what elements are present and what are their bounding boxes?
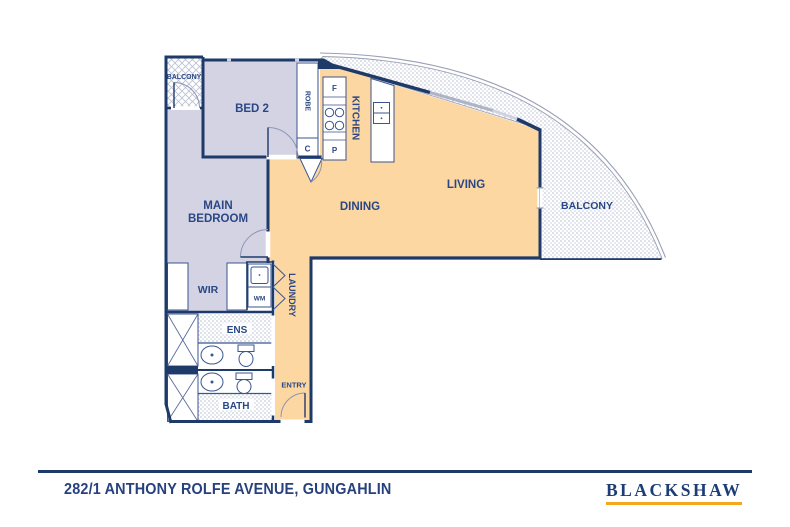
label-wir: WIR (198, 284, 219, 296)
label-pantry: P (332, 146, 338, 155)
ens-bath-divider-wall (166, 366, 198, 374)
wir-wardrobe-right (227, 263, 247, 310)
label-main-bedroom-1: MAIN (203, 200, 232, 212)
label-bath: BATH (222, 401, 249, 412)
label-balcony-right: BALCONY (561, 200, 613, 212)
label-dining: DINING (340, 201, 380, 213)
ens-doorway (271, 316, 274, 367)
room-balcony-left (167, 57, 204, 108)
label-living: LIVING (447, 179, 485, 191)
label-fridge: F (332, 84, 337, 93)
label-robe: ROBE (304, 91, 311, 112)
property-address: 282/1 ANTHONY ROLFE AVENUE, GUNGAHLIN (64, 481, 392, 499)
wir-wardrobe-left (168, 263, 189, 310)
window-tick (227, 59, 231, 62)
label-ens: ENS (227, 325, 248, 336)
label-laundry: LAUNDRY (287, 273, 297, 317)
bath-toilet-icon (236, 373, 252, 380)
label-wm: WM (254, 296, 266, 303)
label-kitchen: KITCHEN (350, 96, 361, 140)
balcony-left-floor (167, 57, 204, 108)
label-balcony-left: BALCONY (167, 74, 202, 81)
ens-toilet-icon (238, 345, 254, 352)
blackshaw-logo: BLACKSHAW (606, 480, 742, 505)
floorplan-page: { "footer": { "address": "282/1 ANTHONY … (0, 0, 790, 527)
label-cupboard: C (305, 145, 311, 154)
window-tick (295, 59, 299, 62)
floor-plan: BALCONY BED 2 ROBE KITCHEN F C P MAIN BE… (0, 0, 790, 527)
footer-divider (38, 470, 752, 473)
label-entry: ENTRY (281, 381, 306, 390)
label-main-bedroom-2: BEDROOM (188, 213, 248, 225)
bath-doorway (271, 379, 274, 416)
label-bed2: BED 2 (235, 103, 269, 115)
